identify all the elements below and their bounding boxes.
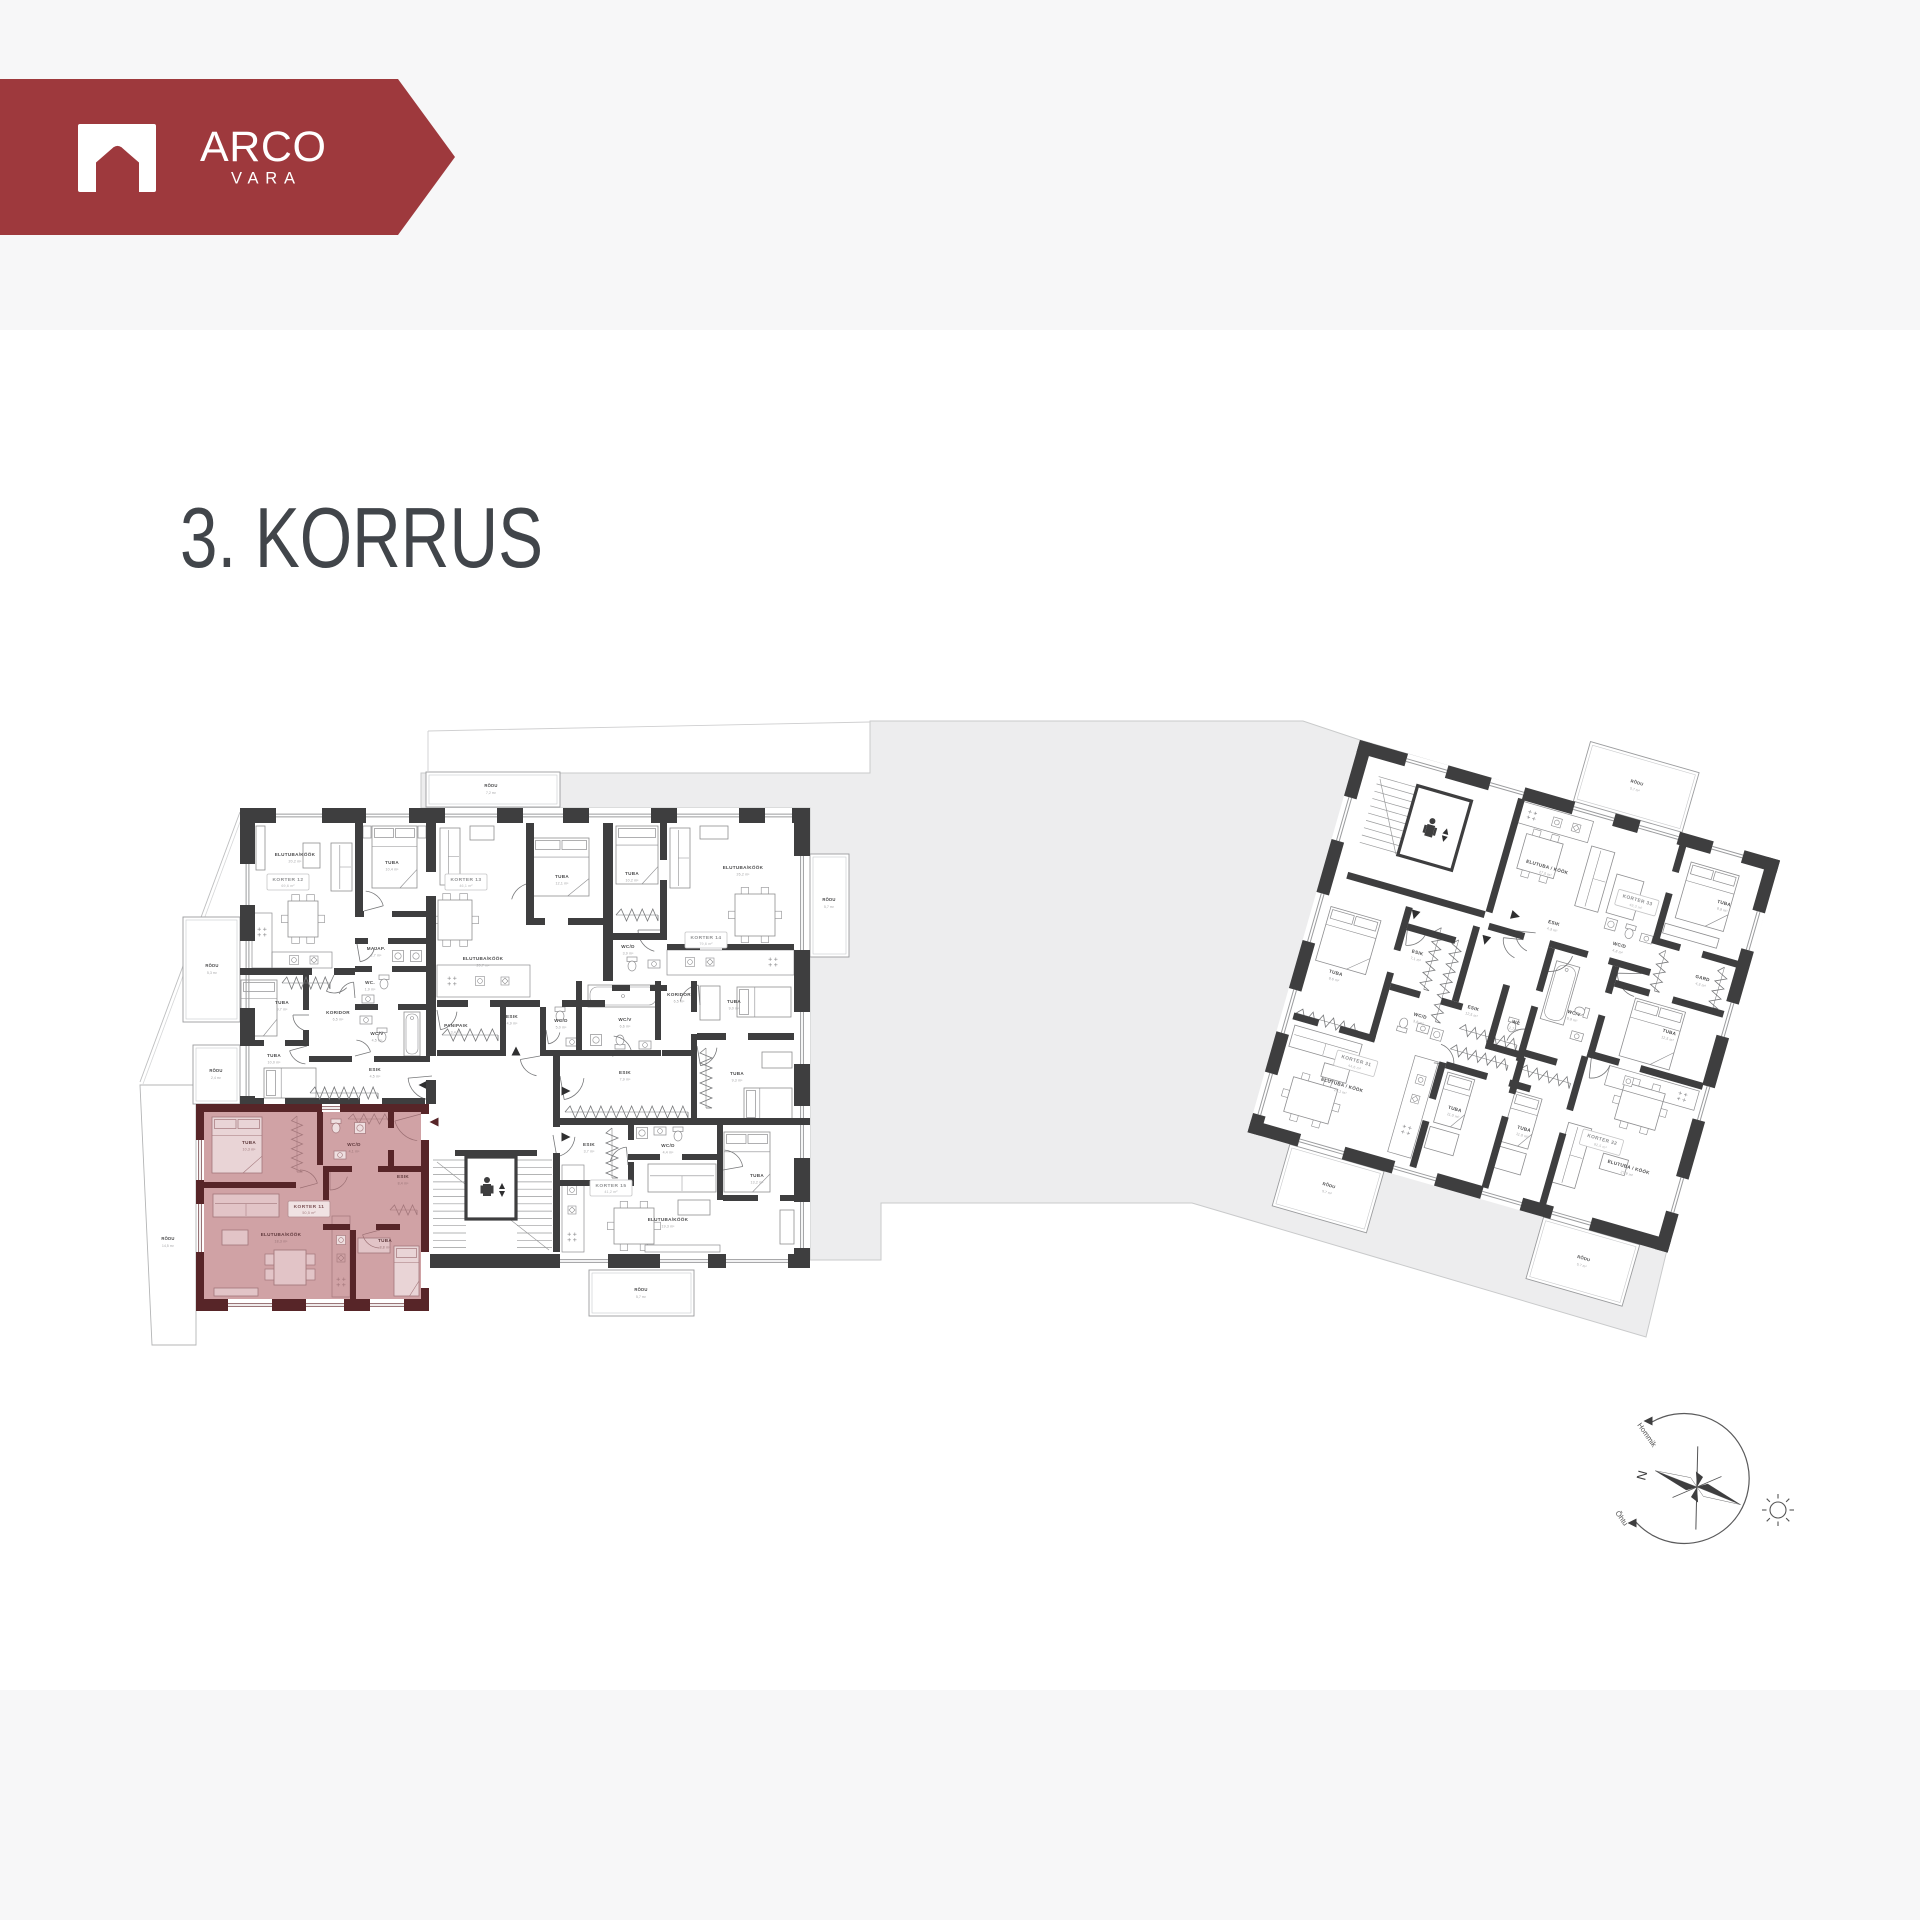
svg-text:RÕDU: RÕDU: [822, 897, 835, 902]
svg-text:ELUTUBA/KÖÖK: ELUTUBA/KÖÖK: [261, 1231, 302, 1237]
svg-text:5,7 m²: 5,7 m²: [636, 1295, 647, 1299]
svg-text:WC/V: WC/V: [370, 1031, 384, 1036]
svg-text:RÕDU: RÕDU: [205, 963, 218, 968]
svg-text:1,9 m²: 1,9 m²: [365, 988, 377, 992]
svg-text:10,3 m²: 10,3 m²: [243, 1148, 257, 1152]
svg-text:9,3 m²: 9,3 m²: [732, 1079, 744, 1083]
svg-text:MAJAP.: MAJAP.: [367, 946, 386, 951]
svg-text:69,6 m²: 69,6 m²: [281, 884, 295, 888]
svg-text:ESIK: ESIK: [619, 1070, 631, 1075]
svg-text:TUBA: TUBA: [730, 1071, 744, 1076]
svg-text:5,7 m²: 5,7 m²: [824, 905, 835, 909]
svg-text:TUBA: TUBA: [750, 1173, 764, 1178]
svg-text:19,3 m²: 19,3 m²: [662, 1225, 676, 1229]
svg-text:ELUTUBA/KÖÖK: ELUTUBA/KÖÖK: [275, 851, 316, 857]
svg-text:KORTER 11: KORTER 11: [294, 1204, 325, 1210]
svg-text:WC/D: WC/D: [347, 1142, 361, 1147]
svg-text:8,4 m²: 8,4 m²: [398, 1182, 410, 1186]
svg-text:ARCO: ARCO: [200, 123, 326, 171]
svg-text:2,7 m²: 2,7 m²: [371, 954, 383, 958]
svg-text:ELUTUBA/KÖÖK: ELUTUBA/KÖÖK: [723, 864, 764, 870]
svg-text:8,8 m²: 8,8 m²: [380, 1246, 392, 1250]
svg-text:14,5 m²: 14,5 m²: [162, 1244, 175, 1248]
svg-text:10,2 m²: 10,2 m²: [626, 879, 640, 883]
svg-text:WC/D: WC/D: [621, 944, 635, 949]
svg-text:RÕDU: RÕDU: [484, 783, 497, 788]
svg-text:ELUTUBA/KÖÖK: ELUTUBA/KÖÖK: [463, 955, 504, 961]
svg-text:4,1 m²: 4,1 m²: [349, 1150, 361, 1154]
svg-text:TUBA: TUBA: [625, 871, 639, 876]
svg-text:46,1 m²: 46,1 m²: [459, 884, 473, 888]
svg-text:WC.: WC.: [365, 980, 375, 985]
svg-text:5,0 m²: 5,0 m²: [556, 1026, 568, 1030]
svg-text:6,5 m²: 6,5 m²: [333, 1018, 345, 1022]
svg-text:4,9 m²: 4,9 m²: [507, 1022, 519, 1026]
svg-text:TUBA: TUBA: [378, 1238, 392, 1243]
svg-text:41,2 m²: 41,2 m²: [604, 1190, 618, 1194]
svg-text:3,4 m²: 3,4 m²: [451, 1031, 463, 1035]
svg-text:10,4 m²: 10,4 m²: [386, 868, 400, 872]
svg-text:KORTER 14: KORTER 14: [691, 935, 722, 941]
svg-text:26,2 m²: 26,2 m²: [737, 873, 751, 877]
svg-text:TUBA: TUBA: [242, 1140, 256, 1145]
svg-text:WC/V: WC/V: [618, 1017, 632, 1022]
svg-text:6,6 m²: 6,6 m²: [620, 1025, 632, 1029]
svg-text:ELUTUBA/KÖÖK: ELUTUBA/KÖÖK: [648, 1216, 689, 1222]
svg-text:KORTER 15: KORTER 15: [596, 1183, 627, 1189]
svg-text:79,6 m²: 79,6 m²: [699, 942, 713, 946]
svg-text:5,3 m²: 5,3 m²: [207, 971, 218, 975]
svg-text:ESIK: ESIK: [583, 1142, 595, 1147]
svg-text:WC/D: WC/D: [554, 1018, 568, 1023]
svg-text:TUBA: TUBA: [727, 999, 741, 1004]
svg-text:PANIPAIK: PANIPAIK: [444, 1023, 468, 1028]
svg-text:4,5 m²: 4,5 m²: [372, 1039, 384, 1043]
svg-text:ESIK: ESIK: [506, 1014, 518, 1019]
svg-text:RÕDU: RÕDU: [634, 1287, 647, 1292]
svg-text:20,7 m²: 20,7 m²: [477, 964, 491, 968]
svg-text:20,2 m²: 20,2 m²: [289, 860, 303, 864]
svg-text:TUBA: TUBA: [275, 1000, 289, 1005]
svg-text:2,4 m²: 2,4 m²: [211, 1076, 222, 1080]
svg-text:6,5 m²: 6,5 m²: [674, 1000, 686, 1004]
svg-text:18,3 m²: 18,3 m²: [275, 1240, 289, 1244]
svg-text:WC/D: WC/D: [661, 1143, 675, 1148]
svg-text:3. KORRUS: 3. KORRUS: [180, 491, 543, 586]
svg-text:7,2 m²: 7,2 m²: [486, 791, 497, 795]
svg-text:TUBA: TUBA: [267, 1053, 281, 1058]
svg-text:7,9 m²: 7,9 m²: [620, 1078, 632, 1082]
svg-text:ESIK: ESIK: [369, 1067, 381, 1072]
svg-text:12,1 m²: 12,1 m²: [556, 882, 570, 886]
svg-text:3,7 m²: 3,7 m²: [584, 1150, 596, 1154]
svg-text:KORIDOR: KORIDOR: [667, 992, 691, 997]
svg-text:TUBA: TUBA: [385, 860, 399, 865]
svg-text:ESIK: ESIK: [397, 1174, 409, 1179]
svg-text:3,9 m²: 3,9 m²: [623, 952, 635, 956]
svg-text:TUBA: TUBA: [555, 874, 569, 879]
svg-text:9,7 m²: 9,7 m²: [277, 1008, 289, 1012]
svg-text:KORTER 13: KORTER 13: [451, 877, 482, 883]
svg-text:RÕDU: RÕDU: [209, 1068, 222, 1073]
svg-text:KORTER 12: KORTER 12: [273, 877, 304, 883]
svg-text:9,0 m²: 9,0 m²: [729, 1007, 741, 1011]
svg-text:4,4 m²: 4,4 m²: [663, 1151, 675, 1155]
svg-text:KORIDOR: KORIDOR: [326, 1010, 350, 1015]
svg-text:RÕDU: RÕDU: [161, 1236, 174, 1241]
svg-text:13,2 m²: 13,2 m²: [751, 1181, 765, 1185]
svg-text:10,0 m²: 10,0 m²: [268, 1061, 282, 1065]
svg-text:4,5 m²: 4,5 m²: [370, 1075, 382, 1079]
svg-text:50,5 m²: 50,5 m²: [302, 1211, 316, 1215]
